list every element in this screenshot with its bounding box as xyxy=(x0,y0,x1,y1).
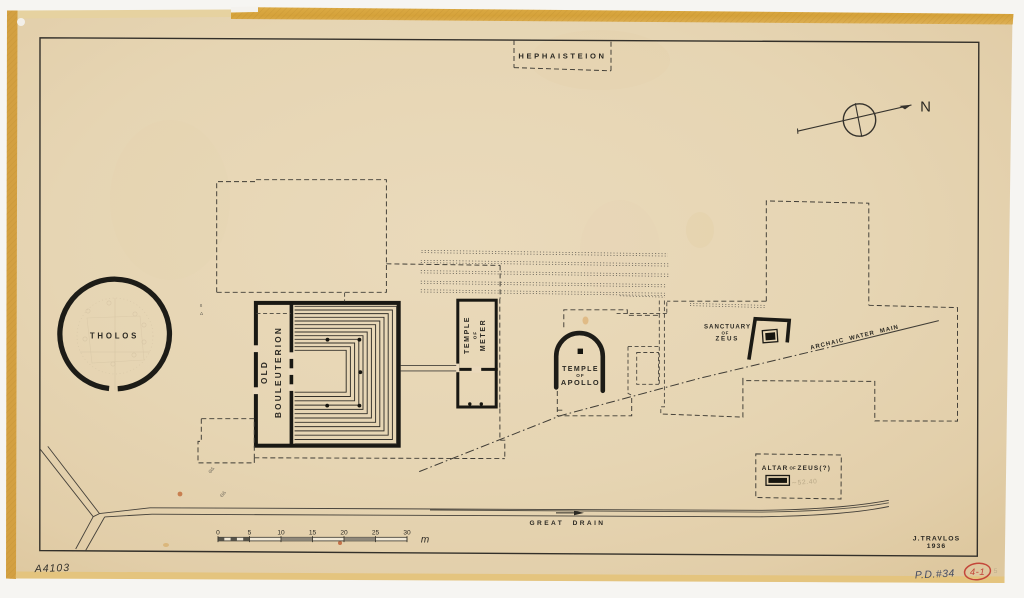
svg-text:HEPHAISTEION: HEPHAISTEION xyxy=(518,52,606,61)
svg-text:30: 30 xyxy=(403,530,411,537)
svg-text:OF: OF xyxy=(472,331,477,339)
svg-text:ZEUS: ZEUS xyxy=(715,336,739,343)
svg-text:OF: OF xyxy=(789,466,796,471)
svg-text:5: 5 xyxy=(248,530,252,537)
svg-text:THOLOS: THOLOS xyxy=(90,332,139,341)
svg-text:ALTAR: ALTAR xyxy=(762,465,789,472)
svg-text:BOULEUTERION: BOULEUTERION xyxy=(274,326,283,418)
svg-text:OLD: OLD xyxy=(260,360,269,384)
svg-text:20: 20 xyxy=(340,530,348,537)
svg-text:A4103: A4103 xyxy=(34,562,71,575)
svg-text:METER: METER xyxy=(480,319,487,352)
svg-text:TEMPLE: TEMPLE xyxy=(562,366,599,373)
svg-text:P.D.#34: P.D.#34 xyxy=(915,567,956,581)
svg-text:25: 25 xyxy=(372,530,380,537)
svg-text:8: 8 xyxy=(200,303,203,308)
svg-text:APOLLO: APOLLO xyxy=(561,378,600,387)
svg-text:10: 10 xyxy=(277,530,285,537)
svg-text:m: m xyxy=(421,535,429,546)
svg-text:15: 15 xyxy=(309,530,317,537)
svg-text:0: 0 xyxy=(216,530,220,537)
svg-text:SANCTUARY: SANCTUARY xyxy=(704,323,751,330)
svg-text:OF: OF xyxy=(721,330,729,335)
svg-text:Δ: Δ xyxy=(200,311,203,316)
svg-text:N: N xyxy=(920,99,931,116)
svg-text:TEMPLE: TEMPLE xyxy=(464,316,471,354)
svg-text:1936: 1936 xyxy=(927,543,947,550)
svg-text:GREAT DRAIN: GREAT DRAIN xyxy=(530,520,606,527)
svg-text:J.TRAVLOS: J.TRAVLOS xyxy=(913,536,961,543)
svg-text:ZEUS(?): ZEUS(?) xyxy=(798,465,832,472)
svg-text:5: 5 xyxy=(994,568,998,575)
svg-text:4-1: 4-1 xyxy=(970,567,985,578)
